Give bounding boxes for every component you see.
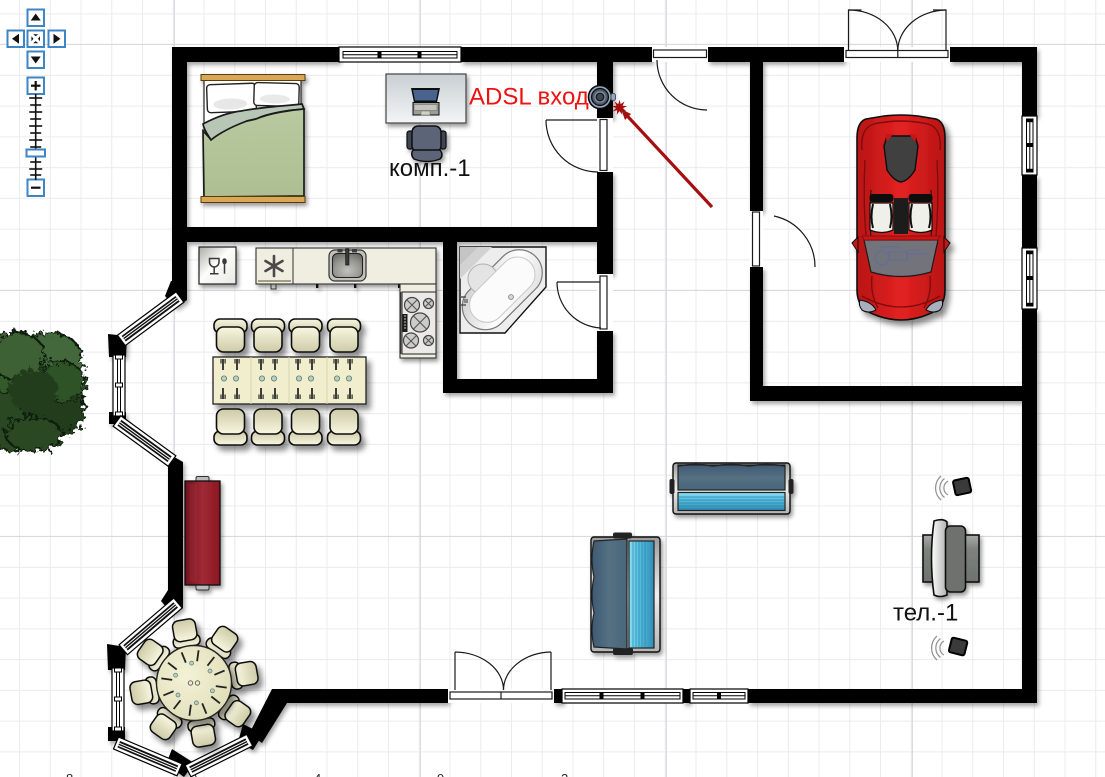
svg-text:4: 4	[314, 771, 321, 777]
svg-text:комп.-1: комп.-1	[389, 155, 471, 182]
svg-text:9: 9	[437, 771, 444, 777]
svg-text:тел.-1: тел.-1	[893, 600, 958, 627]
svg-text:2: 2	[561, 771, 568, 777]
svg-text:8: 8	[66, 771, 73, 777]
svg-text:ADSL вход: ADSL вход	[469, 84, 589, 111]
